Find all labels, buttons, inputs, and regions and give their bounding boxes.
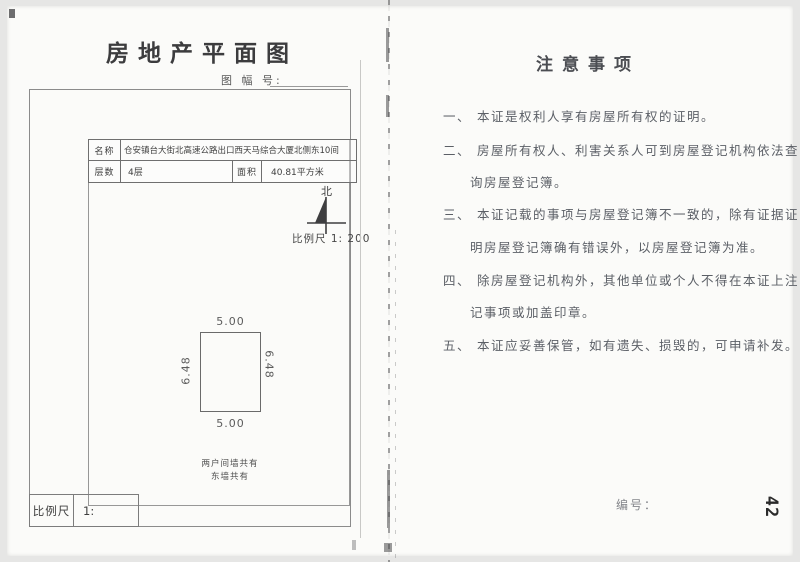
dimension-top: 5.00 [200,315,261,328]
note-item-3-cont: 明房屋登记簿确有错误外，以房屋登记簿为准。 [470,237,764,256]
scale-note: 比例尺 1: 200 [292,231,370,246]
note-line: 本证是权利人享有房屋所有权的证明。 [477,109,715,124]
note-item-5: 五、本证应妥善保管，如有遗失、损毁的，可申请补发。 [443,335,799,354]
note-line: 房屋所有权人、利害关系人可到房屋登记机构依法查 [477,143,799,158]
table-row: 名称 仓安镇台大街北高速公路出口西天马综合大厦北侧东10间 [89,140,356,161]
scale-box-label-cell: 比例尺 [30,495,74,526]
scan-mark [352,540,356,550]
note-line: 记事项或加盖印章。 [470,305,596,320]
fold-smudge [386,95,389,117]
page-number: 42 [761,496,781,518]
dimension-bottom: 5.00 [200,417,261,430]
area-label-cell: 面积 [233,161,262,182]
map-sheet-number-blank [270,86,348,87]
note-line: 除房屋登记机构外，其他单位或个人不得在本证上注 [477,273,799,288]
note-item-1: 一、本证是权利人享有房屋所有权的证明。 [443,106,715,125]
serial-number-label: 编号： [616,496,658,513]
scan-edge-line [360,60,361,538]
binding-fold-line-secondary [395,230,396,562]
name-label-cell: 名称 [89,140,121,160]
name-value-cell: 仓安镇台大街北高速公路出口西天马综合大厦北侧东10间 [121,140,356,160]
scale-box: 比例尺 1: [29,494,139,527]
note-line: 询房屋登记簿。 [470,175,568,190]
dimension-right: 6.48 [263,345,276,385]
room-outline [200,332,261,412]
floors-value-cell: 4层 [121,161,233,182]
note-item-3: 三、本证记载的事项与房屋登记簿不一致的，除有证据证 [443,204,799,223]
note-number: 三、 [443,207,471,222]
note-item-4: 四、除房屋登记机构外，其他单位或个人不得在本证上注 [443,270,799,289]
note-item-2-cont: 询房屋登记簿。 [470,172,568,191]
note-line: 明房屋登记簿确有错误外，以房屋登记簿为准。 [470,240,764,255]
scan-corner-mark [9,9,15,18]
scanned-certificate-spread: 房地产平面图 图 幅 号: 名称 仓安镇台大街北高速公路出口西天马综合大厦北侧东… [0,0,800,562]
fold-smudge [386,28,389,62]
property-info-table: 名称 仓安镇台大街北高速公路出口西天马综合大厦北侧东10间 层数 4层 面积 4… [88,139,357,183]
wall-note-line2: 东墙共有 [145,470,315,482]
notices-title: 注意事项 [536,50,640,75]
scale-box-value-cell: 1: [74,495,138,526]
floors-label-cell: 层数 [89,161,121,182]
fold-smudge [384,543,392,552]
note-number: 二、 [443,143,471,158]
table-row: 层数 4层 面积 40.81平方米 [89,161,356,182]
fold-smudge [387,470,390,528]
note-number: 一、 [443,109,471,124]
north-arrow-icon [302,194,348,236]
note-line: 本证应妥善保管，如有遗失、损毁的，可申请补发。 [477,338,799,353]
note-line: 本证记载的事项与房屋登记簿不一致的，除有证据证 [477,207,799,222]
note-item-4-cont: 记事项或加盖印章。 [470,302,596,321]
page-title: 房地产平面图 [106,34,298,68]
dimension-left: 6.48 [180,351,193,391]
note-number: 四、 [443,273,471,288]
note-number: 五、 [443,338,471,353]
area-value-cell: 40.81平方米 [262,161,356,182]
note-item-2: 二、房屋所有权人、利害关系人可到房屋登记机构依法查 [443,140,799,159]
wall-note-line1: 两户间墙共有 [145,457,315,469]
